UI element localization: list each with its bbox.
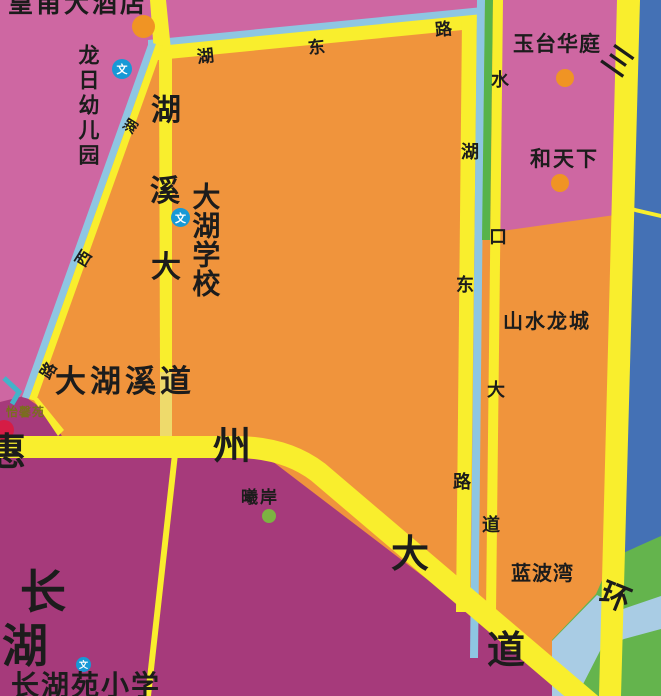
road-label-dahuxidao: 大湖溪道: [55, 366, 195, 399]
place-label-shanshuilongcheng[interactable]: 山水龙城: [503, 312, 591, 333]
road-label-hudonglu-v-1: 湖: [461, 143, 479, 162]
place-label-changhu-char1[interactable]: 长: [20, 568, 66, 616]
poi-dot-xian[interactable]: [262, 509, 276, 523]
poi-dot-hotel[interactable]: [132, 15, 155, 38]
place-label-yutai[interactable]: 玉台华庭: [513, 34, 601, 56]
place-label-lanbowan[interactable]: 蓝波湾: [511, 564, 574, 585]
road-label-shuikoudadao-1: 水: [491, 71, 509, 90]
road-label-huxidadao-3: 大: [151, 252, 181, 284]
place-label-kindergarten[interactable]: 龙日幼儿园: [76, 44, 98, 169]
poi-dot-yutai[interactable]: [556, 69, 574, 87]
road-label-hudonglu-top-2: 东: [307, 38, 326, 58]
road-label-hudonglu-top-1: 湖: [196, 47, 215, 67]
place-label-hotel[interactable]: 皇甫大酒店: [8, 0, 148, 17]
road-label-huizhoudadao-1: 惠: [0, 434, 26, 474]
road-label-hudonglu-top-3: 路: [434, 20, 453, 40]
school-wen-icon-dahu[interactable]: 文: [171, 208, 190, 227]
place-label-xian[interactable]: 曦岸: [241, 489, 279, 507]
road-label-shuikoudadao-3: 大: [487, 381, 505, 400]
region-pink-northwest: [0, 0, 490, 402]
road-label-shuikoudadao-4: 道: [482, 516, 500, 535]
place-label-changhuyuan-school[interactable]: 长湖苑小学: [11, 671, 161, 696]
road-label-huizhoudadao-4: 道: [487, 632, 525, 672]
road-label-hudonglu-v-2: 东: [456, 276, 474, 295]
school-wen-icon-kindergarten[interactable]: 文: [112, 59, 132, 79]
place-label-changhu-char2[interactable]: 湖: [2, 622, 48, 670]
place-label-yixinyuan[interactable]: 怡馨苑: [6, 406, 45, 419]
road-label-huizhoudadao-2: 州: [213, 428, 251, 468]
road-label-huizhoudadao-3: 大: [391, 536, 429, 576]
map-canvas[interactable]: 文 文 文 皇甫大酒店 龙日幼儿园 大湖学校 玉台华庭 和天下 山水龙城 蓝波湾…: [0, 0, 661, 696]
road-label-huxidadao-2: 溪: [150, 176, 180, 208]
map-shapes: [0, 0, 661, 696]
wen-glyph: 文: [117, 61, 128, 77]
place-label-hetianxia[interactable]: 和天下: [530, 149, 599, 171]
road-label-huxidadao-1: 湖: [151, 95, 181, 127]
road-label-shuikoudadao-2: 口: [489, 228, 507, 247]
place-label-dahu-school[interactable]: 大湖学校: [190, 182, 219, 298]
wen-glyph: 文: [175, 210, 186, 226]
road-label-hudonglu-v-3: 路: [453, 473, 471, 492]
poi-dot-hetianxia[interactable]: [551, 174, 569, 192]
